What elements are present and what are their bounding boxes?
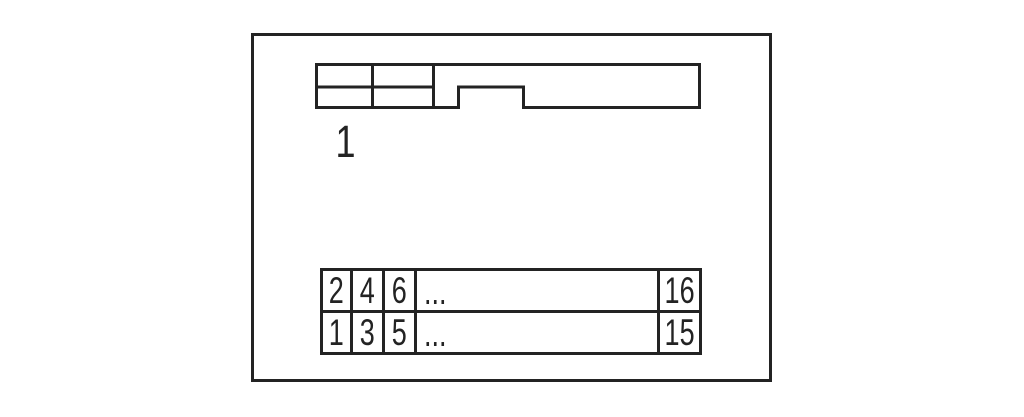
pin-table-cell-pin4: 4: [353, 271, 385, 313]
pin-table-cell-pin3: 3: [353, 313, 385, 352]
ellipsis-even-label: ...: [424, 273, 447, 310]
connector-profile: [315, 63, 701, 109]
pin-table-cell-pin6: 6: [385, 271, 417, 313]
ellipsis-odd-label: ...: [424, 315, 447, 352]
pin4-label: 4: [360, 272, 375, 309]
pin3-label: 3: [360, 314, 375, 351]
pin1-label: 1: [329, 314, 344, 351]
pin-table-cell-pin1: 1: [323, 313, 353, 352]
pin-table-cell-pin15: 15: [660, 313, 699, 352]
pin16-label: 16: [664, 272, 694, 309]
pin1-marker-text: 1: [336, 119, 356, 164]
pin1-marker: 1: [328, 119, 364, 164]
pin-table-cell-ellipsis-odd: ...: [417, 313, 660, 352]
pin-table-cell-pin2: 2: [323, 271, 353, 313]
pin15-label: 15: [664, 314, 694, 351]
pin-table-cell-pin16: 16: [660, 271, 699, 313]
connector-pin-assignment-diagram: 1 2 4 6 ... 16 1 3 5 ... 15: [0, 0, 1024, 417]
pin-table-cell-pin5: 5: [385, 313, 417, 352]
pin-number-table: 2 4 6 ... 16 1 3 5 ... 15: [320, 268, 702, 355]
connector-profile-dividers: [317, 65, 434, 108]
pin-table-cell-ellipsis-even: ...: [417, 271, 660, 313]
pin5-label: 5: [392, 314, 407, 351]
pin2-label: 2: [329, 272, 344, 309]
pin6-label: 6: [392, 272, 407, 309]
